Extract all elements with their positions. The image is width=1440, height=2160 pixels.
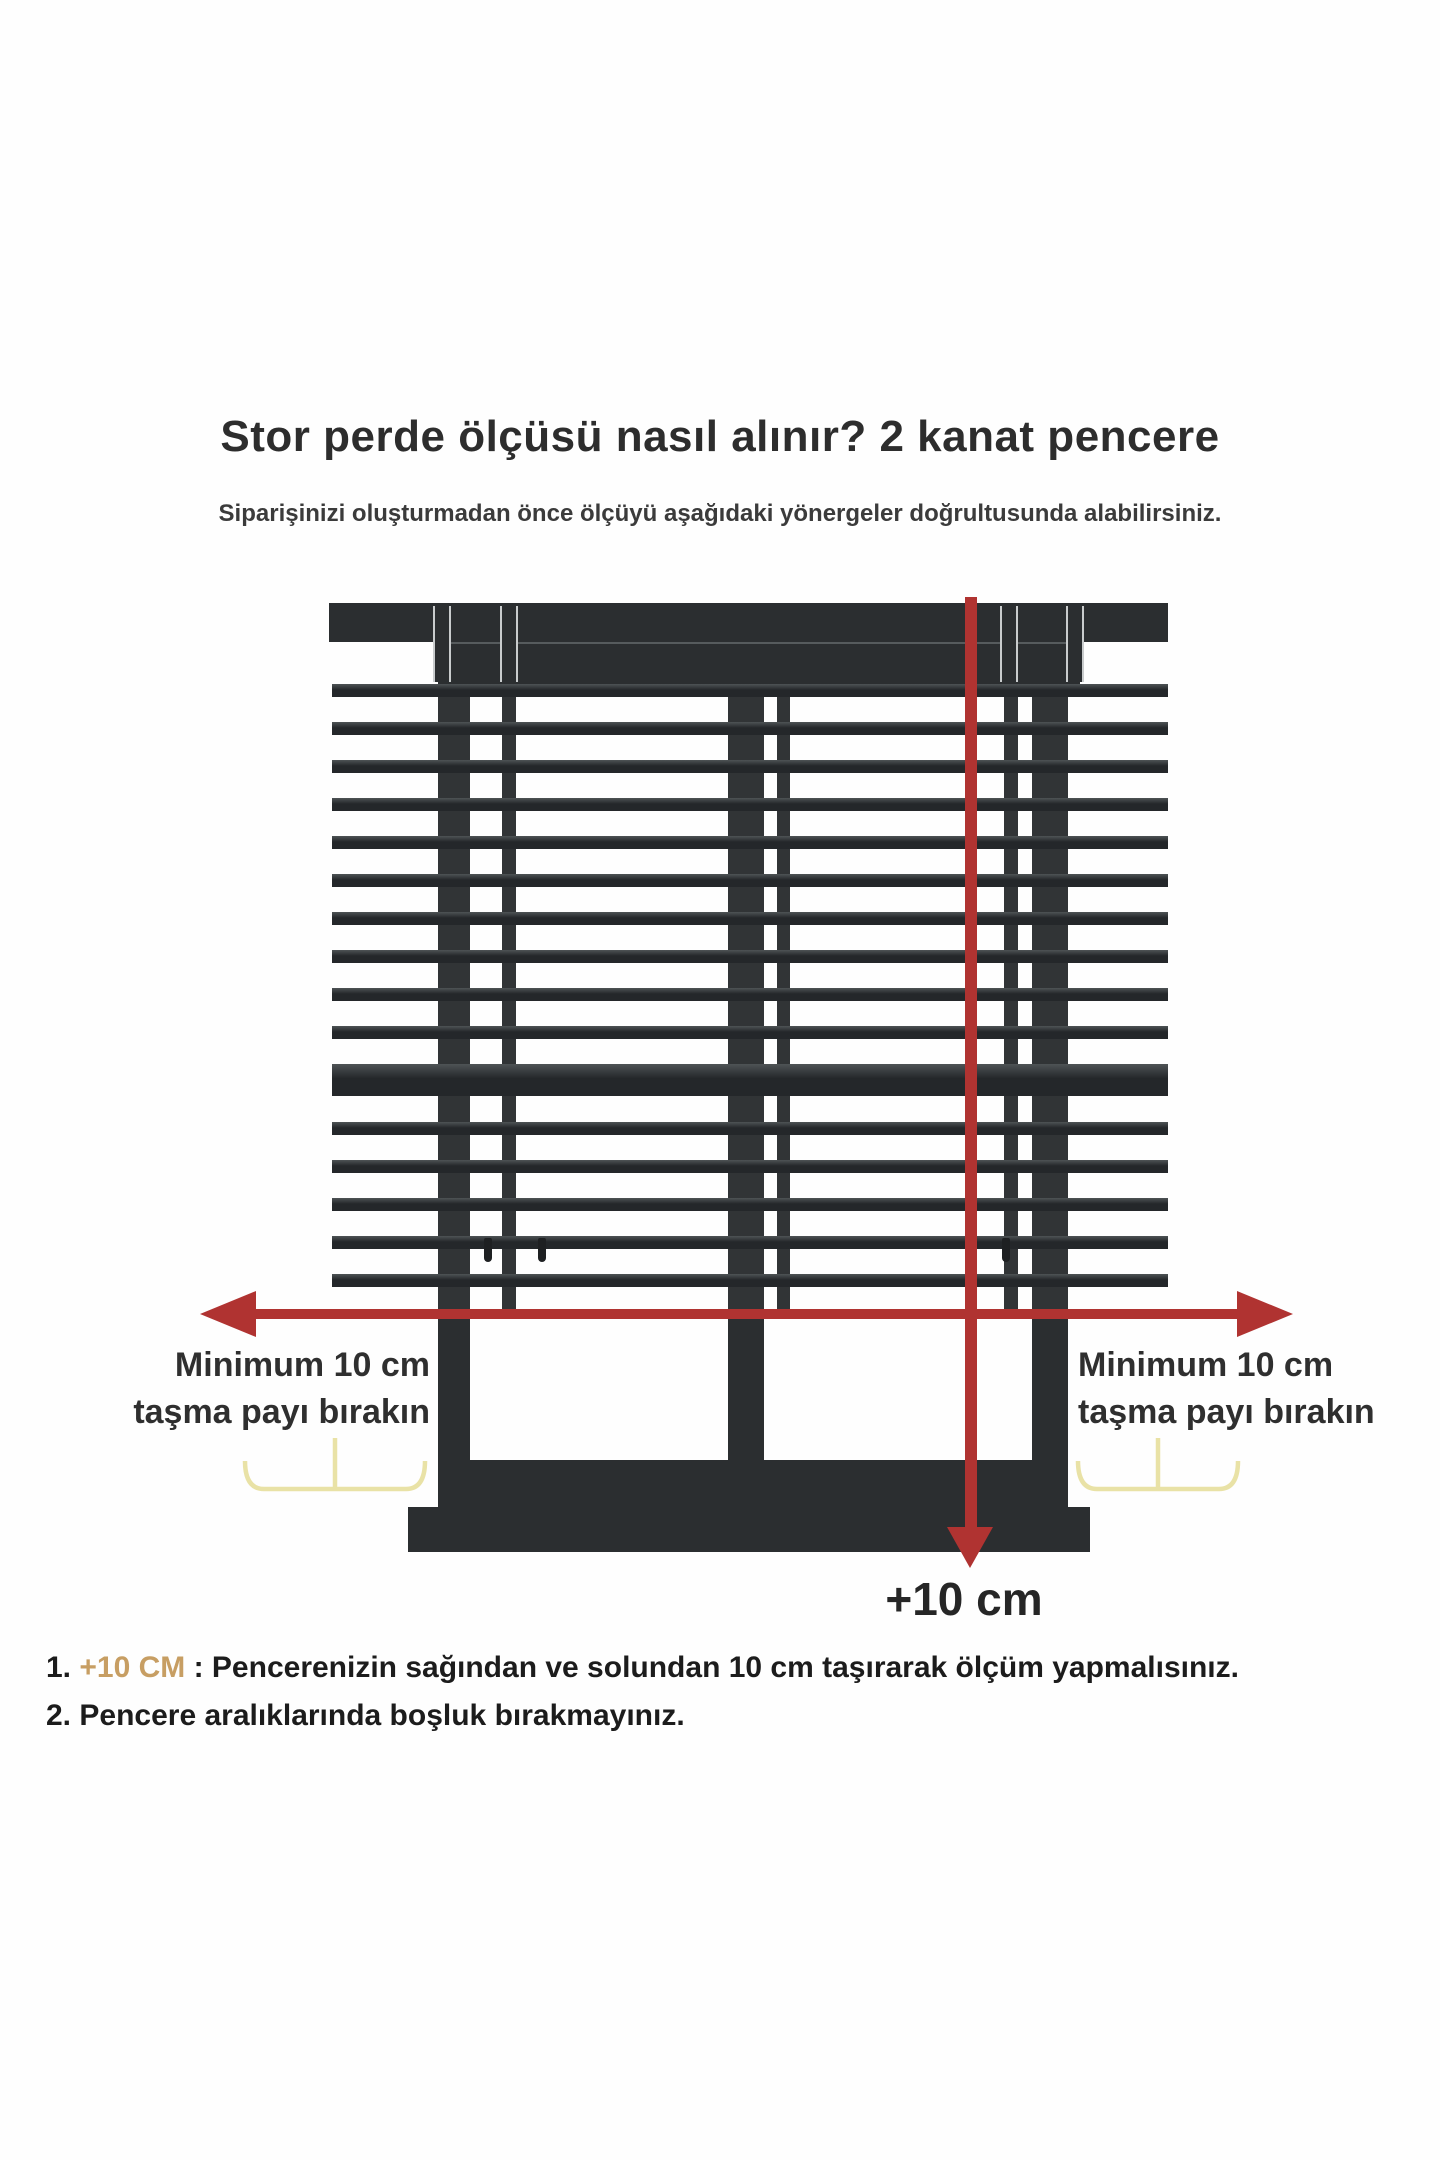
footnote-1-number: 1. [46, 1651, 71, 1684]
cord-tassel [484, 1238, 492, 1262]
window-sill [408, 1507, 1090, 1552]
blind-slat [332, 1026, 1168, 1039]
blind-slat [332, 988, 1168, 1001]
left-overhang-label-line2: taşma payı bırakın [90, 1389, 430, 1436]
blind-slat [332, 950, 1168, 963]
blind-slat [332, 798, 1168, 811]
cord-tassel [538, 1238, 546, 1262]
infographic-page: Stor perde ölçüsü nasıl alınır? 2 kanat … [0, 0, 1440, 2160]
blind-slat [332, 912, 1168, 925]
cord-tassel [1002, 1238, 1010, 1262]
blind-slat [332, 760, 1168, 773]
left-overhang-label-line1: Minimum 10 cm [90, 1342, 430, 1389]
blind-slat [332, 874, 1168, 887]
blind-slat [332, 1274, 1168, 1287]
blind-slat [332, 1198, 1168, 1211]
footnote-2-text: Pencere aralıklarında boşluk bırakmayını… [79, 1699, 684, 1732]
footnote-2-number: 2. [46, 1699, 71, 1732]
blind-slat [332, 722, 1168, 735]
footnote-2: 2. Pencere aralıklarında boşluk bırakmay… [46, 1692, 1416, 1740]
blind-slat [332, 836, 1168, 849]
left-overhang-label: Minimum 10 cm taşma payı bırakın [90, 1342, 430, 1436]
blind-slat [332, 1236, 1168, 1249]
right-overhang-label-line2: taşma payı bırakın [1078, 1389, 1418, 1436]
blind-slat [332, 1122, 1168, 1135]
footnotes: 1. +10 CM : Pencerenizin sağından ve sol… [46, 1644, 1416, 1740]
height-arrow-label: +10 cm [814, 1572, 1114, 1626]
footnote-1: 1. +10 CM : Pencerenizin sağından ve sol… [46, 1644, 1416, 1692]
right-overhang-label: Minimum 10 cm taşma payı bırakın [1078, 1342, 1418, 1436]
blind-middle-rail [332, 1064, 1168, 1096]
blind-slat [332, 1160, 1168, 1173]
footnote-1-text: : Pencerenizin sağından ve solundan 10 c… [185, 1651, 1239, 1684]
footnote-1-highlight: +10 CM [79, 1651, 185, 1684]
window-bottom-rail [438, 1460, 1068, 1507]
blind-slat [332, 684, 1168, 697]
blind-slats [332, 0, 1168, 2160]
right-arrowhead-icon [1237, 1291, 1293, 1337]
right-overhang-label-line1: Minimum 10 cm [1078, 1342, 1418, 1389]
left-arrowhead-icon [200, 1291, 256, 1337]
